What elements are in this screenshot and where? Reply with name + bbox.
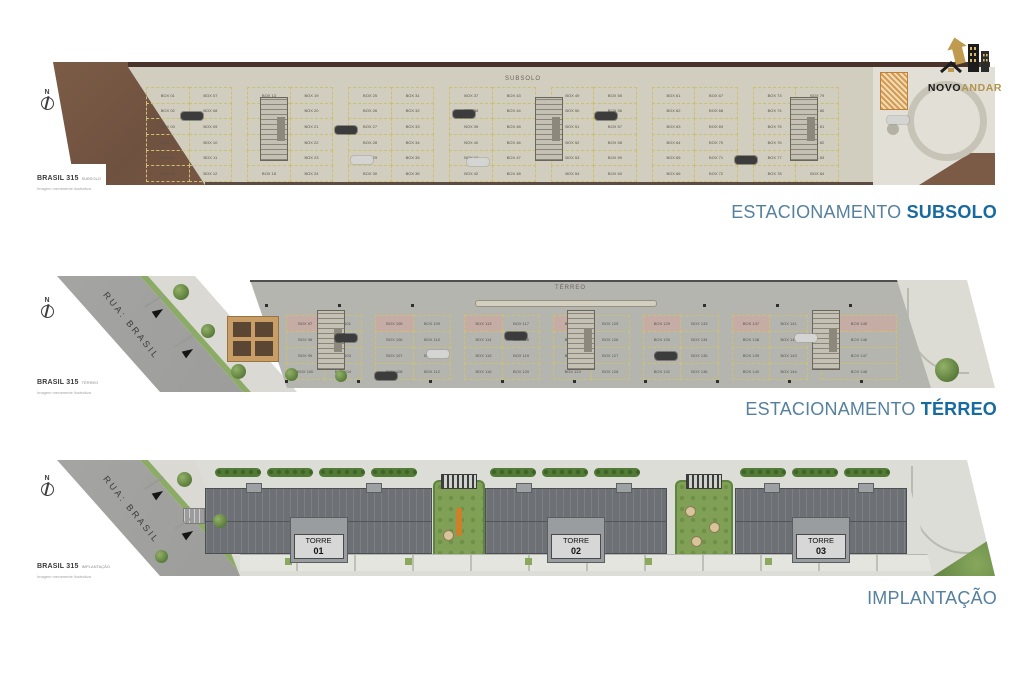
tree-icon <box>213 514 227 528</box>
car-icon <box>795 334 817 342</box>
planter <box>405 558 412 565</box>
novoandar-logo-icon <box>936 36 994 76</box>
car-icon <box>505 332 527 340</box>
car-icon <box>375 372 397 380</box>
roof-vent <box>366 483 382 493</box>
subsolo-parking-grid: BOX 01BOX 02BOX 03BOX 04BOX 05BOX 06BOX … <box>147 88 839 182</box>
parking-box: BOX 61 <box>652 87 696 104</box>
stair-core <box>535 97 563 161</box>
parking-box: BOX 36 <box>391 165 435 182</box>
novoandar-logo: NOVOANDAR <box>922 36 1008 94</box>
stair-core <box>260 97 288 161</box>
parking-box: BOX 114 <box>464 331 502 348</box>
pergola <box>441 474 477 489</box>
parking-box: BOX 20 <box>290 103 334 120</box>
parking-box: BOX 24 <box>290 165 334 182</box>
parking-box: BOX 07 <box>189 87 233 104</box>
plan-footer-sub: SUBSOLO <box>82 176 101 181</box>
plan-footer: BRASIL 315TÉRREO Imagem meramente ilustr… <box>35 368 103 397</box>
parking-box: BOX 19 <box>290 87 334 104</box>
parking-box: BOX 33 <box>391 118 435 135</box>
parking-box: BOX 119 <box>502 347 541 364</box>
planter <box>525 558 532 565</box>
parking-box: BOX 11 <box>189 150 233 167</box>
parking-box: BOX 128 <box>591 363 630 380</box>
tree-icon <box>231 364 246 379</box>
plan-footer-title: BRASIL 315 <box>37 563 79 570</box>
roof-vent <box>858 483 874 493</box>
car-icon <box>595 112 617 120</box>
tree-icon <box>155 550 168 563</box>
parking-box: BOX 62 <box>652 103 696 120</box>
parking-box: BOX 28 <box>348 134 392 151</box>
parking-box: BOX 12 <box>189 165 233 182</box>
parking-box: BOX 63 <box>652 118 696 135</box>
pillar <box>887 123 899 135</box>
parking-box: BOX 60 <box>593 165 637 182</box>
parking-box: BOX 144 <box>769 363 808 380</box>
parking-box-group: BOX 25BOX 26BOX 27BOX 28BOX 29BOX 30BOX … <box>349 88 434 182</box>
torre-01-label: TORRE 01 <box>294 534 344 559</box>
parking-box: BOX 35 <box>391 150 435 167</box>
parking-box-group: BOX 37BOX 38BOX 39BOX 40BOX 41BOX 42BOX … <box>450 88 535 182</box>
compass-icon: N <box>37 298 57 318</box>
parking-box-group: BOX 105BOX 106BOX 107BOX 108BOX 109BOX 1… <box>376 316 451 380</box>
playground-slide <box>456 508 462 536</box>
tower-2-roof: TORRE 02 <box>485 488 667 554</box>
roof-vent <box>764 483 780 493</box>
parking-box: BOX 59 <box>593 150 637 167</box>
plan-footer-sub: TÉRREO <box>82 380 99 385</box>
plan-footer-title: BRASIL 315 <box>37 175 79 182</box>
tree-icon <box>201 324 215 338</box>
parking-box: BOX 37 <box>449 87 493 104</box>
parking-box: BOX 06 <box>146 165 190 182</box>
parking-box: BOX 110 <box>413 331 452 348</box>
parking-box: BOX 48 <box>492 165 536 182</box>
courtyard-lounge <box>675 480 733 562</box>
parking-box: BOX 136 <box>680 363 719 380</box>
car-icon <box>735 156 757 164</box>
parking-box: BOX 115 <box>464 347 502 364</box>
parking-box: BOX 10 <box>189 134 233 151</box>
car-icon <box>887 116 909 124</box>
planter <box>645 558 652 565</box>
parking-box: BOX 32 <box>391 103 435 120</box>
tree-icon <box>177 472 192 487</box>
parking-box: BOX 68 <box>694 103 738 120</box>
plan-footer-title: BRASIL 315 <box>37 379 79 386</box>
roof-vent <box>516 483 532 493</box>
implantacao-site-plan: RUA: BRASIL TORRE 01 TORRE 02 <box>35 460 995 576</box>
hedge <box>844 468 890 477</box>
compass-icon: N <box>37 476 57 496</box>
parking-box: BOX 34 <box>391 134 435 151</box>
parking-box: BOX 105 <box>375 315 414 332</box>
parking-box: BOX 57 <box>593 118 637 135</box>
column-dots <box>285 380 935 383</box>
parking-box: BOX 140 <box>732 363 771 380</box>
terreo-floor-plan: RUA: BRASIL TÉRREO BOX 97BOX 98BOX 99BOX… <box>35 276 995 392</box>
car-icon <box>351 156 373 164</box>
hedge <box>490 468 536 477</box>
tower-1-core: TORRE 01 <box>290 517 348 563</box>
parking-box: BOX 01 <box>146 87 190 104</box>
parking-box: BOX 47 <box>492 150 536 167</box>
tree-icon <box>335 370 347 382</box>
parking-box: BOX 46 <box>492 134 536 151</box>
hedge <box>542 468 588 477</box>
parking-box: BOX 54 <box>551 165 595 182</box>
compass-icon: N <box>37 90 57 110</box>
perimeter-wall <box>128 62 990 67</box>
parking-box: BOX 39 <box>449 118 493 135</box>
parking-box: BOX 141 <box>769 315 808 332</box>
parking-box: BOX 23 <box>290 150 334 167</box>
car-icon <box>335 126 357 134</box>
pergola <box>686 474 722 489</box>
parking-box: BOX 58 <box>593 134 637 151</box>
car-icon <box>655 352 677 360</box>
tree-icon <box>935 358 959 382</box>
parking-box: BOX 117 <box>502 315 541 332</box>
parking-box: BOX 116 <box>464 363 502 380</box>
parking-box: BOX 67 <box>694 87 738 104</box>
hedge <box>215 468 261 477</box>
parking-box-group: BOX 137BOX 138BOX 139BOX 140BOX 141BOX 1… <box>733 316 808 380</box>
parking-box: BOX 72 <box>694 165 738 182</box>
courtyard-playground <box>433 480 485 562</box>
parking-box: BOX 31 <box>391 87 435 104</box>
parking-box: BOX 106 <box>375 331 414 348</box>
parking-box: BOX 84 <box>795 165 839 182</box>
car-icon <box>453 110 475 118</box>
parking-box: BOX 66 <box>652 165 696 182</box>
parking-box: BOX 09 <box>189 118 233 135</box>
parking-box: BOX 138 <box>732 331 771 348</box>
tower-3-roof: TORRE 03 <box>735 488 907 554</box>
parking-box: BOX 65 <box>652 150 696 167</box>
car-icon <box>181 112 203 120</box>
parking-box: BOX 107 <box>375 347 414 364</box>
parking-box: BOX 139 <box>732 347 771 364</box>
roof-vent <box>616 483 632 493</box>
floor-edge <box>205 182 873 185</box>
garden-furniture <box>685 506 696 517</box>
parking-box: BOX 03 <box>146 118 190 135</box>
hedge <box>267 468 313 477</box>
parking-box: BOX 64 <box>652 134 696 151</box>
parking-box: BOX 70 <box>694 134 738 151</box>
parking-box: BOX 137 <box>732 315 771 332</box>
garden-furniture <box>691 536 702 547</box>
parking-box: BOX 125 <box>591 315 630 332</box>
parking-box: BOX 55 <box>593 87 637 104</box>
parking-box: BOX 132 <box>643 363 682 380</box>
plan-footer-note: Imagem meramente ilustrativa <box>37 186 101 191</box>
parking-box-group: BOX 49BOX 50BOX 51BOX 52BOX 53BOX 54BOX … <box>552 88 637 182</box>
subsolo-map-label: SUBSOLO <box>505 76 541 82</box>
floor-edge <box>250 280 955 282</box>
parking-box: BOX 22 <box>290 134 334 151</box>
car-icon <box>335 334 357 342</box>
parking-box: BOX 69 <box>694 118 738 135</box>
parking-box: BOX 134 <box>680 331 719 348</box>
hedge <box>792 468 838 477</box>
parking-box: BOX 129 <box>643 315 682 332</box>
parking-box: BOX 18 <box>247 165 291 182</box>
parking-box: BOX 109 <box>413 315 452 332</box>
parking-box: BOX 25 <box>348 87 392 104</box>
parking-box: BOX 42 <box>449 165 493 182</box>
tower-2-core: TORRE 02 <box>547 517 605 563</box>
caption-terreo: ESTACIONAMENTO TÉRREO <box>745 399 997 420</box>
tower-3-core: TORRE 03 <box>792 517 850 563</box>
parking-box: BOX 133 <box>680 315 719 332</box>
plan-footer-note: Imagem meramente ilustrativa <box>37 390 98 395</box>
car-icon <box>467 158 489 166</box>
logo-text-andar: ANDAR <box>961 82 1002 94</box>
tree-icon <box>173 284 189 300</box>
parking-box: BOX 127 <box>591 347 630 364</box>
parking-box: BOX 78 <box>753 165 797 182</box>
roof-vent <box>246 483 262 493</box>
tower-1-roof: TORRE 01 <box>205 488 432 554</box>
hedge <box>319 468 365 477</box>
plan-footer-sub: IMPLANTAÇÃO <box>82 564 110 569</box>
parking-box: BOX 45 <box>492 118 536 135</box>
stair-core <box>790 97 818 161</box>
garden-furniture <box>709 522 720 533</box>
parking-box-group: BOX 01BOX 02BOX 03BOX 04BOX 05BOX 06BOX … <box>147 88 232 182</box>
terreo-map-label: TÉRREO <box>555 285 586 291</box>
garden-furniture <box>443 530 454 541</box>
parking-box: BOX 43 <box>492 87 536 104</box>
planter <box>765 558 772 565</box>
common-deck <box>227 316 279 362</box>
subsolo-floor-plan: SUBSOLO BOX 01BOX 02BOX 03BOX 04BOX 05BO… <box>35 62 995 190</box>
plan-footer: BRASIL 315IMPLANTAÇÃO Imagem meramente i… <box>35 552 115 581</box>
tree-icon <box>285 368 298 381</box>
parking-box-group: BOX 61BOX 62BOX 63BOX 64BOX 65BOX 66BOX … <box>653 88 738 182</box>
parking-box: BOX 04 <box>146 134 190 151</box>
stair-core <box>567 310 595 370</box>
caption-subsolo: ESTACIONAMENTO SUBSOLO <box>731 202 997 223</box>
parking-box: BOX 120 <box>502 363 541 380</box>
parking-box: BOX 113 <box>464 315 502 332</box>
parking-box: BOX 26 <box>348 103 392 120</box>
parking-box: BOX 130 <box>643 331 682 348</box>
plan-footer: BRASIL 315SUBSOLO Imagem meramente ilust… <box>35 164 106 193</box>
parking-box: BOX 71 <box>694 150 738 167</box>
parking-box: BOX 21 <box>290 118 334 135</box>
logo-text-novo: NOVO <box>928 82 961 94</box>
car-icon <box>427 350 449 358</box>
parking-box: BOX 126 <box>591 331 630 348</box>
plan-footer-note: Imagem meramente ilustrativa <box>37 574 110 579</box>
parking-box-group: BOX 129BOX 130BOX 131BOX 132BOX 133BOX 1… <box>644 316 719 380</box>
parking-box: BOX 112 <box>413 363 452 380</box>
speed-bump <box>475 300 657 307</box>
parking-box: BOX 135 <box>680 347 719 364</box>
hedge <box>594 468 640 477</box>
parking-box: BOX 30 <box>348 165 392 182</box>
parking-box: BOX 143 <box>769 347 808 364</box>
torre-03-label: TORRE 03 <box>796 534 846 559</box>
hatched-area <box>880 72 908 110</box>
parking-box-group: BOX 113BOX 114BOX 115BOX 116BOX 117BOX 1… <box>465 316 540 380</box>
caption-implantacao: IMPLANTAÇÃO <box>867 588 997 609</box>
parking-box: BOX 05 <box>146 150 190 167</box>
parking-box: BOX 44 <box>492 103 536 120</box>
hedge <box>740 468 786 477</box>
parking-box: BOX 40 <box>449 134 493 151</box>
torre-02-label: TORRE 02 <box>551 534 601 559</box>
hedge <box>371 468 417 477</box>
